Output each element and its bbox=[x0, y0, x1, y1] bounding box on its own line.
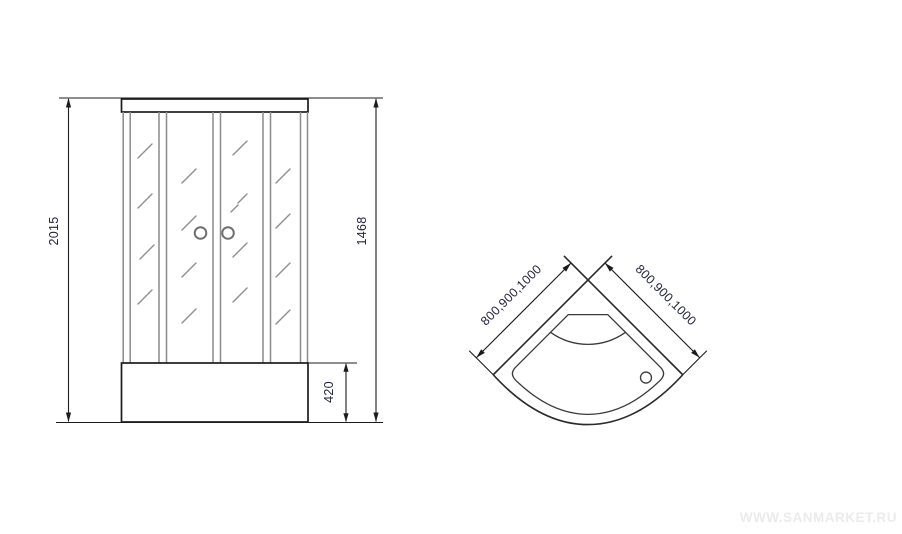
arrow-down-icon bbox=[66, 413, 71, 423]
dim-label-glass-height: 1468 bbox=[355, 216, 369, 245]
tray-left-wall-edge bbox=[493, 256, 612, 375]
frame-profile bbox=[301, 112, 308, 363]
arrow-up-icon bbox=[343, 363, 348, 372]
drain-hole bbox=[638, 370, 654, 386]
tray-right-wall-edge bbox=[564, 256, 683, 375]
cabin-roof-cap bbox=[122, 99, 309, 112]
dimension-tray-height: 420 bbox=[322, 363, 349, 422]
site-watermark: WWW.SANMARKET.RU bbox=[740, 510, 897, 525]
dim-label-tray-height: 420 bbox=[322, 381, 336, 403]
frame-profiles bbox=[123, 112, 307, 363]
frame-profile bbox=[159, 112, 167, 363]
arrow-up-icon bbox=[66, 98, 71, 108]
tray-outer-arc bbox=[493, 280, 683, 470]
dim-label-right-width: 800,900,1000 bbox=[633, 262, 700, 329]
glass-panels bbox=[138, 141, 290, 324]
top-view bbox=[469, 232, 707, 470]
arrow-down-icon bbox=[373, 413, 378, 423]
frame-profile bbox=[263, 112, 271, 363]
tray-inner-rim bbox=[509, 295, 667, 453]
drawing-canvas: 2015 1468 420 bbox=[0, 0, 902, 534]
frame-profile bbox=[213, 112, 221, 363]
left-door-handle bbox=[195, 227, 207, 239]
right-door-handle bbox=[222, 227, 234, 239]
shower-tray-front bbox=[122, 363, 309, 422]
dim-label-left-width: 800,900,1000 bbox=[478, 262, 545, 329]
glass-hatch-marks bbox=[138, 141, 290, 324]
dimension-glass-height: 1468 bbox=[355, 98, 379, 422]
front-view: 2015 1468 420 bbox=[47, 98, 383, 423]
dimension-total-height: 2015 bbox=[47, 98, 71, 422]
arrow-down-icon bbox=[343, 413, 348, 422]
shower-cabin-technical-drawing: 2015 1468 420 bbox=[0, 0, 902, 534]
arrow-up-icon bbox=[373, 98, 378, 108]
dim-label-total-height: 2015 bbox=[47, 216, 61, 245]
top-view-rotated bbox=[469, 232, 707, 470]
frame-profile bbox=[123, 112, 130, 363]
